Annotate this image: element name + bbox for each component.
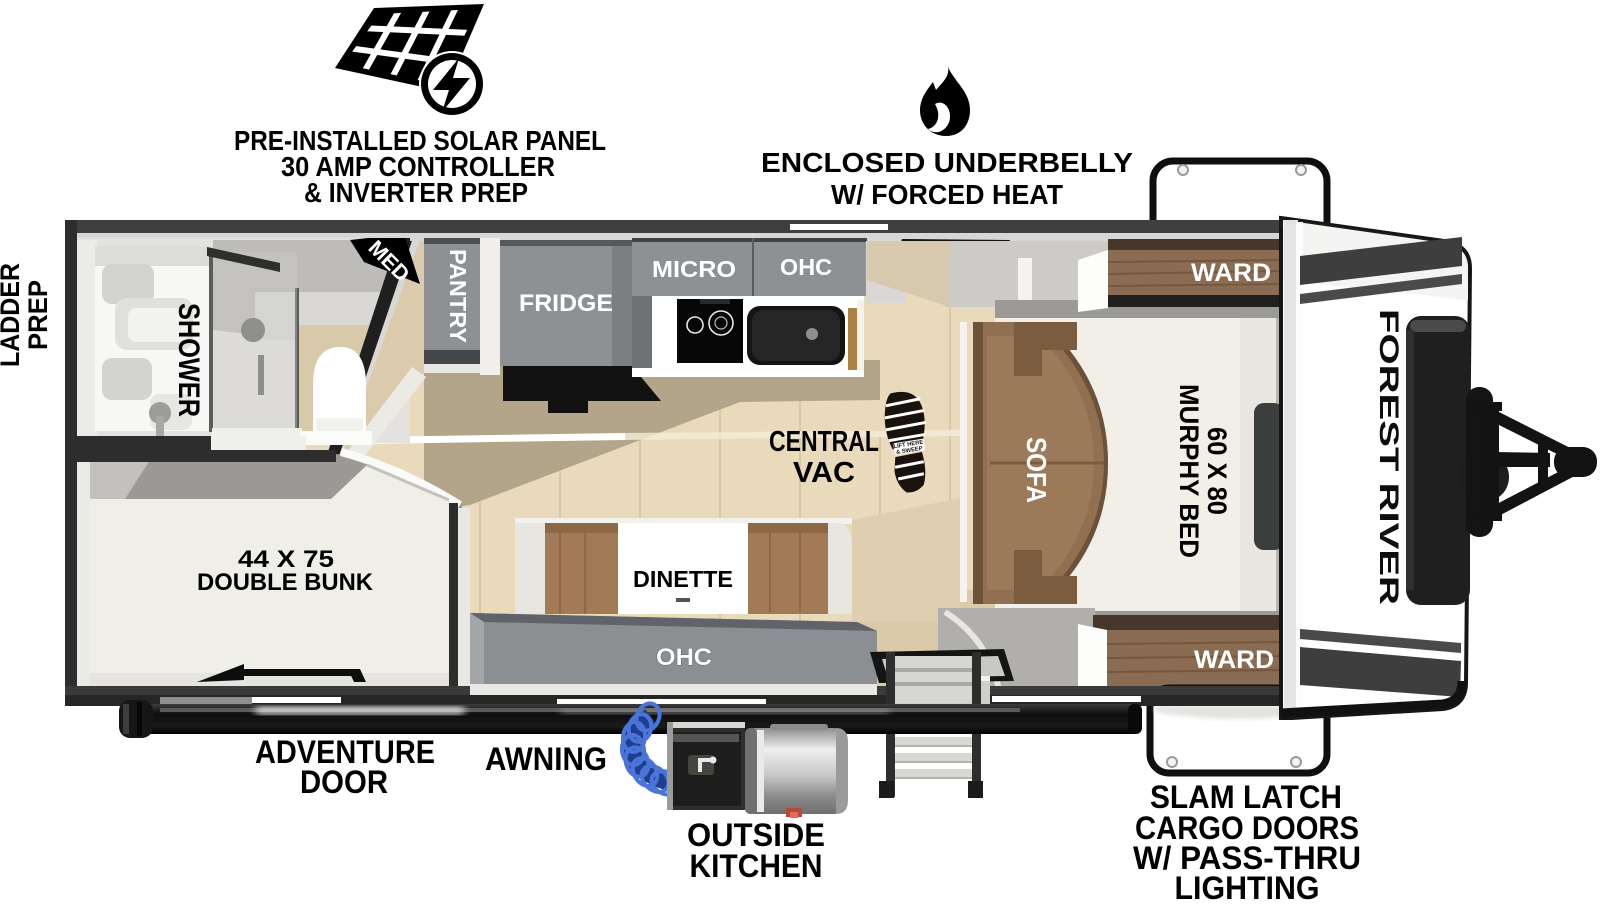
svg-text:SHOWER: SHOWER	[172, 303, 205, 417]
svg-text:VAC: VAC	[793, 457, 855, 489]
svg-text:SOFA: SOFA	[1021, 437, 1052, 503]
svg-text:PANTRY: PANTRY	[445, 249, 471, 343]
svg-text:MURPHY BED: MURPHY BED	[1174, 384, 1204, 558]
svg-text:MICRO: MICRO	[652, 256, 736, 282]
svg-text:DINETTE: DINETTE	[633, 566, 733, 592]
svg-text:ENCLOSED UNDERBELLY: ENCLOSED UNDERBELLY	[761, 147, 1133, 178]
svg-text:FRIDGE: FRIDGE	[519, 290, 613, 317]
svg-text:WARD: WARD	[1194, 646, 1274, 674]
svg-text:PREP: PREP	[23, 280, 53, 350]
svg-text:WARD: WARD	[1191, 259, 1271, 287]
svg-text:LIGHTING: LIGHTING	[1175, 870, 1320, 905]
svg-text:DOUBLE BUNK: DOUBLE BUNK	[197, 569, 374, 596]
svg-text:LADDER: LADDER	[0, 263, 25, 367]
svg-text:60 X 80: 60 X 80	[1202, 427, 1232, 515]
svg-text:KITCHEN: KITCHEN	[690, 848, 823, 884]
svg-text:AWNING: AWNING	[485, 741, 607, 777]
svg-text:OHC: OHC	[656, 644, 712, 671]
svg-text:W/ FORCED HEAT: W/ FORCED HEAT	[831, 179, 1063, 210]
svg-text:CENTRAL: CENTRAL	[769, 426, 879, 458]
svg-text:OHC: OHC	[780, 254, 832, 280]
svg-text:& INVERTER PREP: & INVERTER PREP	[304, 177, 528, 208]
svg-text:DOOR: DOOR	[300, 764, 388, 800]
svg-text:FOREST RIVER: FOREST RIVER	[1374, 309, 1404, 605]
